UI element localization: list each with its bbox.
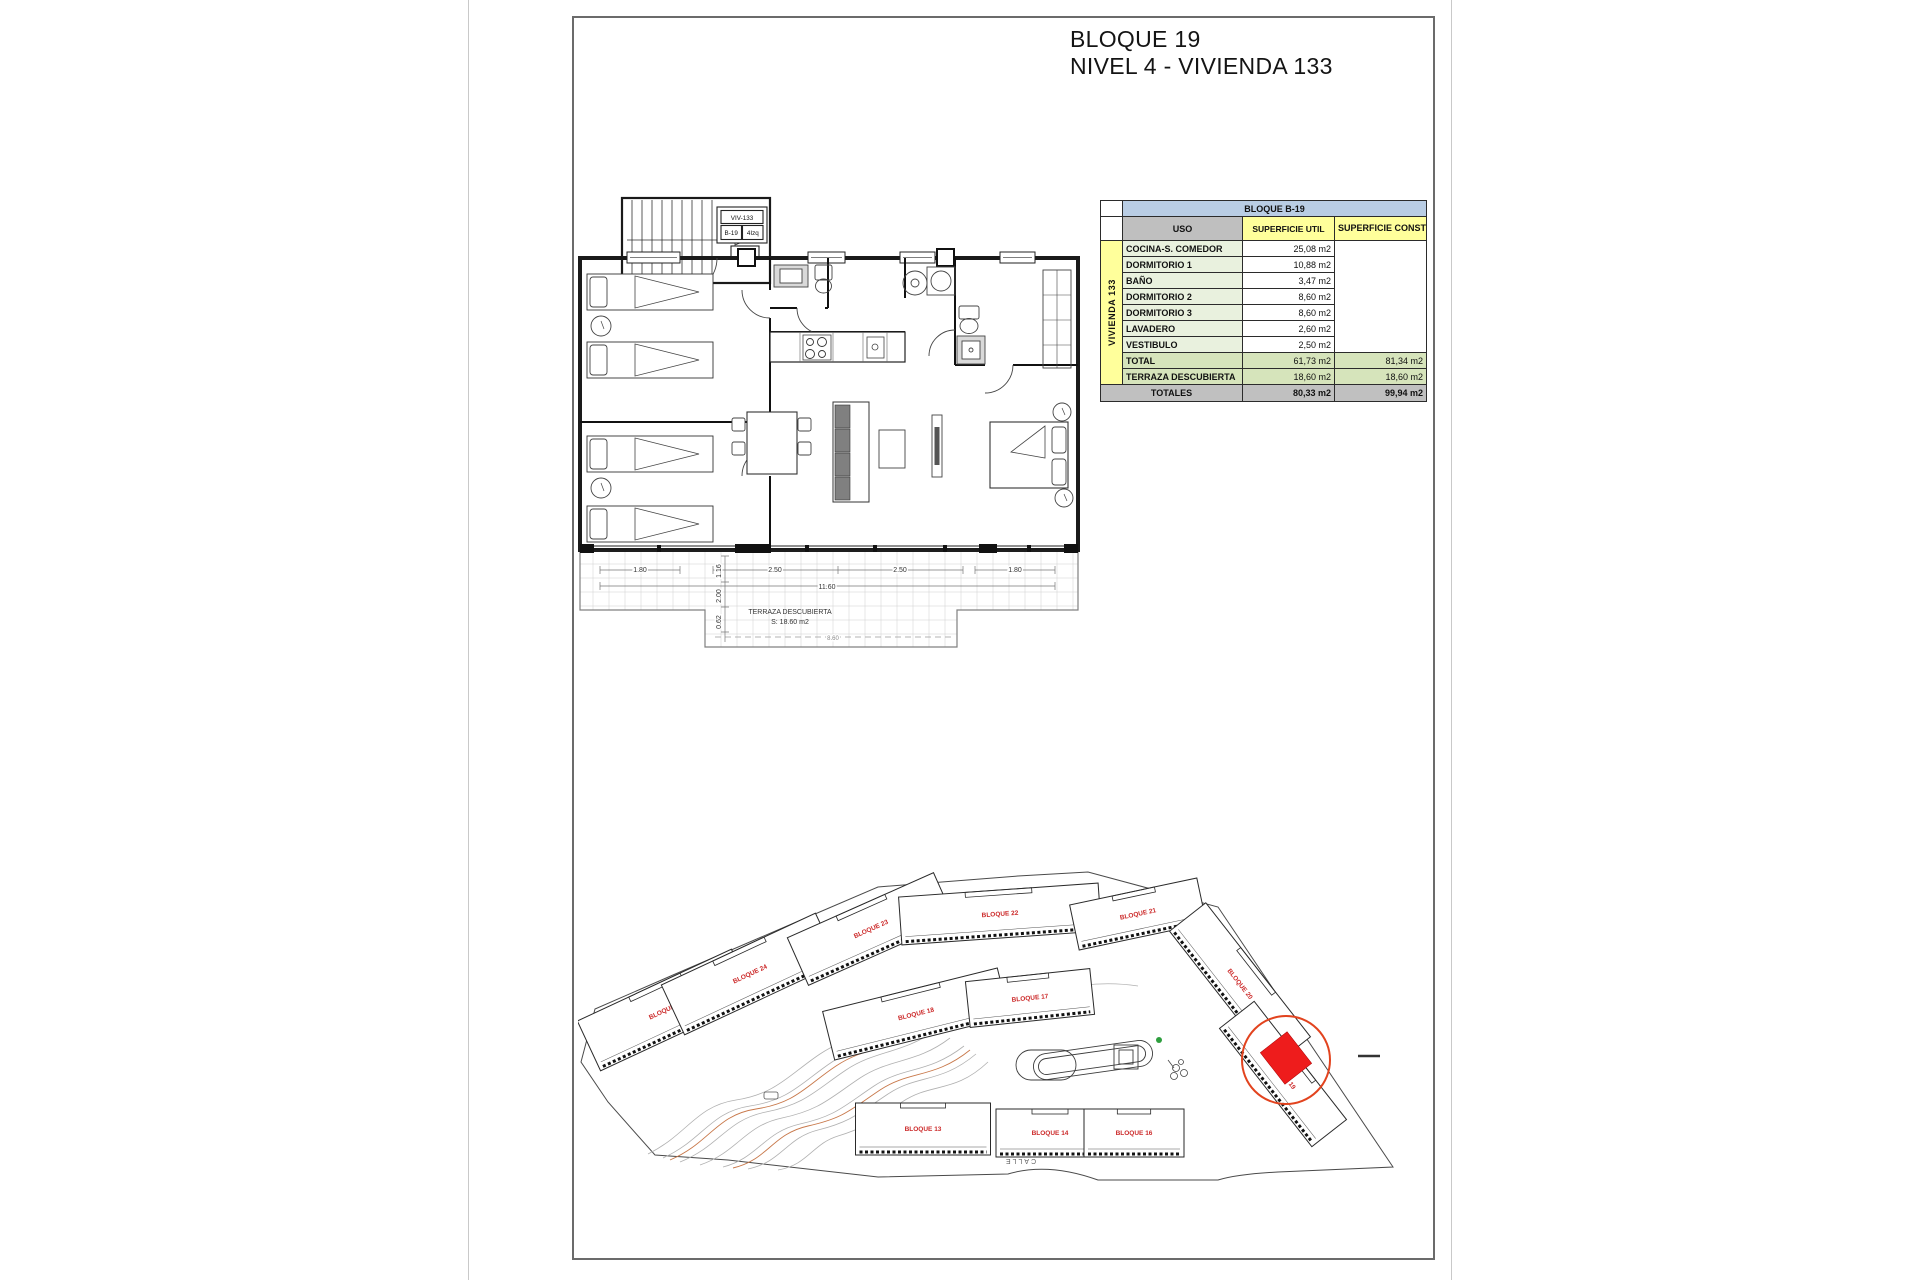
terrace-area-label: S: 18.60 m2 bbox=[771, 619, 809, 626]
living-furniture bbox=[833, 402, 942, 502]
table-spacer bbox=[1101, 201, 1123, 217]
unit-tag-id: VIV-133 bbox=[731, 215, 754, 222]
site-plan-drawing: BLOQUE 20BLOQUE 24BLOQUE 23BLOQUE 22BLOQ… bbox=[578, 862, 1410, 1194]
total-label: TOTAL bbox=[1123, 353, 1243, 369]
dim-label: 2.00 bbox=[716, 589, 723, 603]
title-block: BLOQUE 19 bbox=[1070, 26, 1333, 53]
unit-tag-position: 4Izq bbox=[747, 230, 759, 237]
unit-tag-block: B-19 bbox=[725, 230, 739, 237]
header-uso: USO bbox=[1123, 217, 1243, 241]
site-block: BLOQUE 13 bbox=[856, 1103, 991, 1155]
bedroom2-furniture bbox=[587, 274, 713, 378]
site-block-label: BLOQUE 13 bbox=[905, 1126, 942, 1133]
row-util: 2,50 m2 bbox=[1243, 337, 1335, 353]
kitchen-counter bbox=[770, 332, 905, 362]
row-uso: DORMITORIO 2 bbox=[1123, 289, 1243, 305]
green-marker bbox=[1156, 1037, 1162, 1043]
street-label: CALLE bbox=[1004, 1157, 1036, 1164]
construida-empty-cell bbox=[1335, 241, 1427, 353]
terraza-construida: 18,60 m2 bbox=[1335, 369, 1427, 385]
row-util: 10,88 m2 bbox=[1243, 257, 1335, 273]
row-util: 8,60 m2 bbox=[1243, 305, 1335, 321]
totales-label: TOTALES bbox=[1101, 385, 1243, 402]
row-uso: DORMITORIO 3 bbox=[1123, 305, 1243, 321]
floor-plan-drawing: VIV-133 B-19 4Izq 50.83 bbox=[575, 190, 1085, 660]
row-util: 25,08 m2 bbox=[1243, 241, 1335, 257]
dim-label: 2.50 bbox=[768, 567, 782, 574]
terraza-label: TERRAZA DESCUBIERTA bbox=[1123, 369, 1243, 385]
site-block-label: BLOQUE 14 bbox=[1032, 1130, 1069, 1137]
nightstand bbox=[1055, 489, 1073, 507]
playground bbox=[1168, 1060, 1188, 1080]
stairwell: VIV-133 B-19 4Izq 50.83 bbox=[622, 198, 770, 283]
terrace-tile-grid bbox=[580, 552, 1078, 647]
table-title: BLOQUE B-19 bbox=[1123, 201, 1427, 217]
nightstand bbox=[591, 478, 611, 498]
row-util: 3,47 m2 bbox=[1243, 273, 1335, 289]
toilet bbox=[815, 265, 832, 280]
bedroom1-furniture bbox=[990, 403, 1073, 507]
dimension-labels: 1.802.502.501.8011.601.162.000.628.60 bbox=[633, 564, 1022, 642]
pool-area bbox=[1016, 1039, 1154, 1081]
dim-label: 2.50 bbox=[893, 567, 907, 574]
dim-label: 8.60 bbox=[827, 636, 839, 642]
totales-util: 80,33 m2 bbox=[1243, 385, 1335, 402]
site-blocks: BLOQUE 20BLOQUE 24BLOQUE 23BLOQUE 22BLOQ… bbox=[578, 873, 1347, 1157]
row-uso: VESTIBULO bbox=[1123, 337, 1243, 353]
dim-label: 0.62 bbox=[716, 615, 723, 629]
row-uso: LAVADERO bbox=[1123, 321, 1243, 337]
header-construida: SUPERFICIE CONSTRUIDA bbox=[1335, 217, 1427, 241]
row-util: 2,60 m2 bbox=[1243, 321, 1335, 337]
total-util: 61,73 m2 bbox=[1243, 353, 1335, 369]
nightstand bbox=[591, 316, 611, 336]
totales-construida: 99,94 m2 bbox=[1335, 385, 1427, 402]
car-icon bbox=[764, 1092, 778, 1099]
row-uso: COCINA-S. COMEDOR bbox=[1123, 241, 1243, 257]
total-construida: 81,34 m2 bbox=[1335, 353, 1427, 369]
site-block-label: BLOQUE 16 bbox=[1116, 1130, 1153, 1137]
bedroom3-furniture bbox=[587, 436, 713, 542]
title-level: NIVEL 4 - VIVIENDA 133 bbox=[1070, 53, 1333, 80]
dim-label: 1.80 bbox=[633, 567, 647, 574]
dimension-lines bbox=[600, 556, 1055, 642]
table-spacer bbox=[1101, 217, 1123, 241]
plan-sheet: BLOQUE 19 NIVEL 4 - VIVIENDA 133 bbox=[0, 0, 1920, 1280]
page-margin-right bbox=[1451, 0, 1452, 1280]
terraza-util: 18,60 m2 bbox=[1243, 369, 1335, 385]
site-block: BLOQUE 16 bbox=[1084, 1109, 1184, 1157]
dim-label: 1.16 bbox=[716, 564, 723, 578]
header-util: SUPERFICIE UTIL bbox=[1243, 217, 1335, 241]
sheet-title: BLOQUE 19 NIVEL 4 - VIVIENDA 133 bbox=[1070, 26, 1333, 80]
page-margin-left bbox=[468, 0, 469, 1280]
coffee-table bbox=[879, 430, 905, 468]
washing-machine bbox=[903, 271, 927, 295]
dim-label: 1.80 bbox=[1008, 567, 1022, 574]
dining-table bbox=[747, 412, 797, 474]
dim-label: 11.60 bbox=[819, 584, 836, 591]
row-uso: BAÑO bbox=[1123, 273, 1243, 289]
terrace-label: TERRAZA DESCUBIERTA bbox=[748, 609, 832, 616]
toilet-2 bbox=[959, 306, 979, 319]
nightstand bbox=[1053, 403, 1071, 421]
terrace-outline bbox=[580, 552, 1078, 647]
group-label-cell: VIVIENDA 133 bbox=[1101, 241, 1123, 385]
row-uso: DORMITORIO 1 bbox=[1123, 257, 1243, 273]
surface-area-table: BLOQUE B-19 USO SUPERFICIE UTIL SUPERFIC… bbox=[1100, 200, 1427, 402]
row-util: 8,60 m2 bbox=[1243, 289, 1335, 305]
